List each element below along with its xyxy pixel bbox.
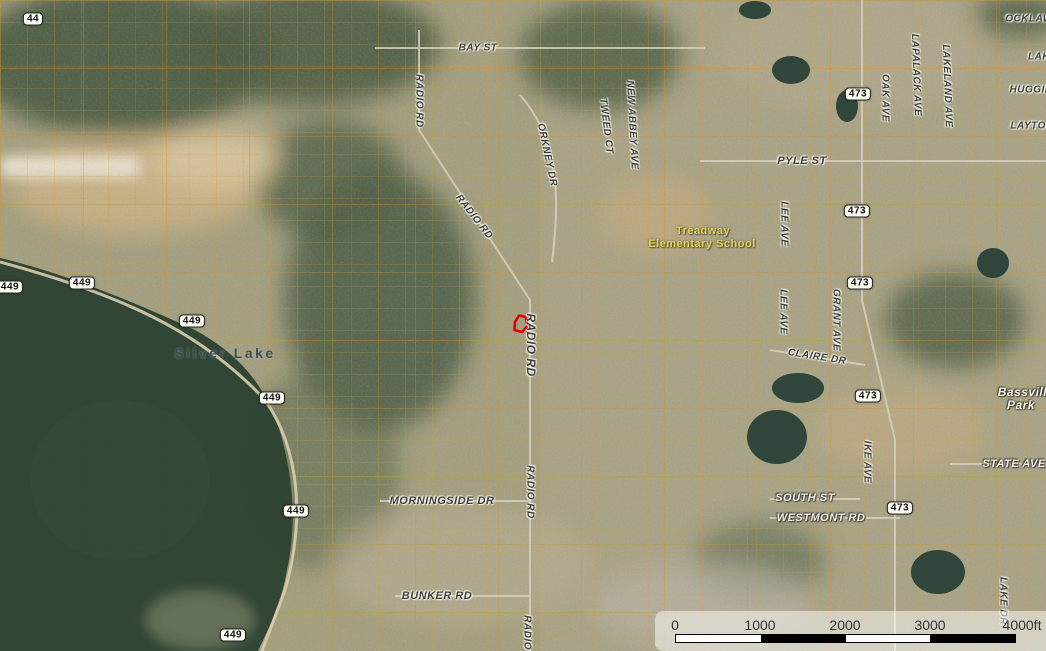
scale-tick-label: 3000 xyxy=(914,617,945,633)
scale-bar-segment xyxy=(846,635,931,642)
scale-tick-label: 4000ft xyxy=(1003,617,1042,633)
scale-bar-segments xyxy=(675,634,1016,643)
scale-tick-label: 0 xyxy=(671,617,679,633)
scale-tick-label: 1000 xyxy=(744,617,775,633)
scale-bar-segment xyxy=(930,635,1015,642)
map-canvas[interactable] xyxy=(0,0,1046,651)
scale-tick-label: 2000 xyxy=(829,617,860,633)
scale-bar-segment xyxy=(676,635,761,642)
scale-tick-labels: 01000200030004000ft xyxy=(655,611,1046,651)
scale-bar: 01000200030004000ft xyxy=(655,611,1046,651)
map-viewport: BAY STRADIO RDRADIO RDORKNEY DRTWEED CTN… xyxy=(0,0,1046,651)
scale-bar-segment xyxy=(761,635,846,642)
